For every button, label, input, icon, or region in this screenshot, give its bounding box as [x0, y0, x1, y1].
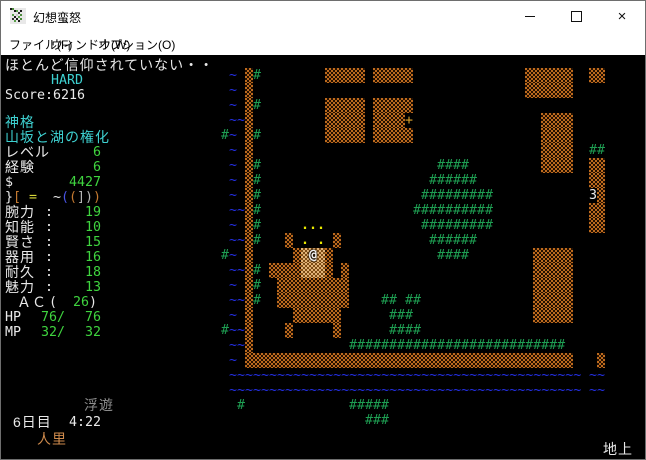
location-text: 人里 — [37, 432, 67, 447]
map-wall — [245, 263, 253, 278]
surface-indicator-text: 地上 — [603, 442, 633, 457]
map-wall — [293, 248, 301, 263]
map-wall — [333, 233, 341, 248]
map-wall — [533, 263, 573, 278]
difficulty-text: HARD — [51, 73, 83, 88]
map-wall — [245, 338, 253, 353]
map-tree: ##### — [349, 398, 389, 413]
stat-int-text: 10 — [85, 220, 101, 235]
map-water: ~ — [229, 98, 237, 113]
map-tree: # — [221, 128, 229, 143]
map-wall — [589, 203, 605, 218]
map-tree: # — [253, 203, 261, 218]
map-wall — [245, 353, 573, 368]
exp-row-text: 6 — [93, 160, 101, 175]
mp-row-text: 32 — [85, 325, 101, 340]
map-wall — [245, 128, 253, 143]
stat-chr-text: 13 — [85, 280, 101, 295]
exp-row-text: 経験 — [5, 160, 35, 175]
equipment-row-text: } — [5, 190, 13, 205]
map-wall — [325, 113, 365, 128]
map-wall — [269, 263, 301, 278]
equipment-row-text: ] — [77, 190, 85, 205]
map-wall — [245, 278, 253, 293]
map-tree: # — [253, 263, 261, 278]
map-shop-floor — [301, 263, 325, 278]
map-wall — [325, 248, 333, 263]
map-water: ~~ — [589, 368, 605, 383]
ac-row-text: 26 — [73, 295, 89, 310]
menu-item-options[interactable]: オプション(O) — [98, 36, 175, 53]
menu-bar: ファイル(F)ウィンドウ(W)オプション(O) — [1, 31, 645, 55]
map-wall — [245, 248, 253, 263]
map-wall — [325, 68, 365, 83]
stat-con-text: 耐久 — [5, 265, 35, 280]
map-wall — [533, 308, 573, 323]
mp-row-text: MP — [5, 325, 21, 340]
map-tree: ########## — [413, 203, 493, 218]
map-wall — [325, 98, 365, 113]
hp-row-text: 76 — [85, 310, 101, 325]
map-tree: ## ## — [381, 293, 421, 308]
equipment-row-text: ) — [85, 190, 93, 205]
maximize-button[interactable] — [553, 1, 599, 31]
stat-chr-text: 魅力 — [5, 280, 35, 295]
gold-row-text: $ — [5, 175, 13, 190]
map-water: ~~ — [229, 233, 245, 248]
map-wall — [245, 203, 253, 218]
map-tree: ## — [589, 143, 605, 158]
map-wall — [285, 323, 293, 338]
map-water: ~~ — [229, 113, 245, 128]
close-icon: × — [618, 9, 627, 24]
map-wall — [285, 233, 293, 248]
level-row-text: 6 — [93, 145, 101, 160]
map-lit-floor-dots: ... — [301, 218, 325, 233]
map-wall — [541, 113, 573, 128]
map-wall — [245, 98, 253, 113]
equipment-row-text: ~ — [53, 190, 61, 205]
map-wall — [533, 248, 573, 263]
map-tree: ###### — [429, 173, 477, 188]
map-wall — [589, 158, 605, 173]
map-tree: ########################### — [349, 338, 565, 353]
map-wall — [373, 98, 413, 113]
map-wall — [541, 143, 573, 158]
map-tree: ### — [365, 413, 389, 428]
maximize-icon — [571, 11, 582, 22]
map-wall — [245, 308, 253, 323]
map-water: ~~~~~~~~~~~~~~~~~~~~~~~~~~~~~~~~~~~~~~~~… — [229, 368, 581, 383]
stat-wis-text: : — [45, 235, 53, 250]
equipment-row-text: [ — [13, 190, 21, 205]
map-water: ~ — [229, 218, 237, 233]
map-wall — [245, 323, 253, 338]
map-wall — [245, 233, 253, 248]
map-tree: # — [237, 398, 245, 413]
equipment-row-text: ( — [61, 190, 69, 205]
app-icon — [10, 8, 26, 24]
map-water: ~~ — [589, 383, 605, 398]
level-row-text: レベル — [5, 145, 50, 160]
ac-row-text: ＡＣ — [17, 295, 47, 310]
window-title: 幻想蛮怒 — [33, 9, 81, 26]
equipment-row-text: ) — [93, 190, 101, 205]
map-wall — [597, 353, 605, 368]
map-wall — [245, 173, 253, 188]
map-tree: # — [253, 233, 261, 248]
map-tree: # — [221, 323, 229, 338]
map-wall — [533, 293, 573, 308]
map-tree: ######### — [421, 218, 493, 233]
map-wall — [341, 263, 349, 278]
map-water: ~ — [229, 128, 237, 143]
score-row-text: Score:6216 — [5, 88, 85, 103]
minimize-button[interactable] — [507, 1, 553, 31]
map-tree: ######### — [421, 188, 493, 203]
stat-wis-text: 15 — [85, 235, 101, 250]
map-wall — [245, 143, 253, 158]
map-water: ~ — [229, 83, 237, 98]
stat-str-text: : — [45, 205, 53, 220]
map-lit-floor-dots: . . — [301, 233, 325, 248]
map-wall — [277, 278, 349, 293]
stat-int-text: 知能 — [5, 220, 35, 235]
map-tree: # — [253, 278, 261, 293]
gold-row-text: 4427 — [69, 175, 101, 190]
map-wall — [525, 68, 573, 83]
day-time-text: 6日目 — [13, 415, 52, 430]
map-wall — [541, 158, 573, 173]
status-effect-levitation-text: 浮遊 — [84, 398, 114, 413]
stat-dex-text: : — [45, 250, 53, 265]
map-wall — [525, 83, 573, 98]
map-water: ~~ — [229, 263, 245, 278]
map-wall — [245, 83, 253, 98]
stat-con-text: : — [45, 265, 53, 280]
stat-dex-text: 16 — [85, 250, 101, 265]
map-water: ~~ — [229, 323, 245, 338]
ac-row-text: ( — [49, 295, 57, 310]
deity-label-text: 神格 — [5, 115, 35, 130]
map-water: ~ — [229, 173, 237, 188]
map-wall — [373, 113, 405, 128]
map-wall — [245, 218, 253, 233]
stat-str-text: 腕力 — [5, 205, 35, 220]
map-wall — [589, 173, 605, 188]
map-tree: # — [253, 188, 261, 203]
deity-title-text: 山坂と湖の権化 — [5, 130, 110, 145]
map-wall — [373, 68, 413, 83]
mp-row-text: 32/ — [41, 325, 65, 340]
stat-dex-text: 器用 — [5, 250, 35, 265]
map-water: ~~ — [229, 338, 245, 353]
status-message-text: ほとんど信仰されていない・・ — [5, 58, 214, 73]
map-tree: # — [253, 293, 261, 308]
map-wall — [541, 128, 573, 143]
map-wall — [589, 218, 605, 233]
minimize-icon — [525, 16, 535, 17]
map-wall — [325, 128, 365, 143]
map-tree: # — [253, 98, 261, 113]
close-button[interactable]: × — [599, 1, 645, 31]
map-tree: # — [253, 158, 261, 173]
map-water: ~ — [229, 308, 237, 323]
equipment-row-text: ( — [69, 190, 77, 205]
stat-int-text: : — [45, 220, 53, 235]
equipment-row-text: = — [29, 190, 37, 205]
day-time-text: 4:22 — [69, 415, 101, 430]
map-wall — [245, 188, 253, 203]
map-door: + — [405, 113, 413, 128]
map-wall — [245, 158, 253, 173]
map-water: ~ — [229, 248, 237, 263]
map-tree: #### — [437, 248, 469, 263]
map-tree: # — [253, 173, 261, 188]
map-tree: # — [221, 248, 229, 263]
map-water: ~ — [229, 143, 237, 158]
map-wall — [277, 293, 349, 308]
map-tree: # — [253, 128, 261, 143]
map-tree: # — [253, 218, 261, 233]
stat-wis-text: 賢さ — [5, 235, 35, 250]
map-water: ~~ — [229, 203, 245, 218]
map-wall — [533, 278, 573, 293]
map-wall — [245, 293, 253, 308]
map-wall — [325, 263, 333, 278]
map-water: ~~~~~~~~~~~~~~~~~~~~~~~~~~~~~~~~~~~~~~~~… — [229, 383, 581, 398]
map-water: ~ — [229, 158, 237, 173]
map-tree: ### — [389, 308, 413, 323]
map-water: ~~ — [229, 293, 245, 308]
map-player: @ — [309, 248, 317, 263]
map-tree: ###### — [429, 233, 477, 248]
hp-row-text: 76/ — [41, 310, 65, 325]
stat-str-text: 19 — [85, 205, 101, 220]
hp-row-text: HP — [5, 310, 21, 325]
map-water: ~ — [229, 68, 237, 83]
map-wall — [589, 68, 605, 83]
map-water: ~ — [229, 278, 237, 293]
map-water: ~ — [229, 188, 237, 203]
map-tree: #### — [437, 158, 469, 173]
game-screen: ほとんど信仰されていない・・HARDScore:6216神格山坂と湖の権化レベル… — [1, 55, 646, 460]
ac-row-text: ) — [89, 295, 97, 310]
app-window: 幻想蛮怒 × ファイル(F)ウィンドウ(W)オプション(O) ほとんど信仰されて… — [0, 0, 646, 460]
map-tree: #### — [389, 323, 421, 338]
map-wall — [245, 113, 253, 128]
map-shop-number: 3 — [589, 188, 597, 203]
title-bar[interactable]: 幻想蛮怒 × — [1, 1, 645, 31]
map-wall — [597, 188, 605, 203]
stat-chr-text: : — [45, 280, 53, 295]
map-wall — [245, 68, 253, 83]
stat-con-text: 18 — [85, 265, 101, 280]
map-tree: # — [253, 68, 261, 83]
map-wall — [293, 308, 341, 323]
map-wall — [333, 323, 341, 338]
map-wall — [373, 128, 413, 143]
map-water: ~ — [229, 353, 237, 368]
